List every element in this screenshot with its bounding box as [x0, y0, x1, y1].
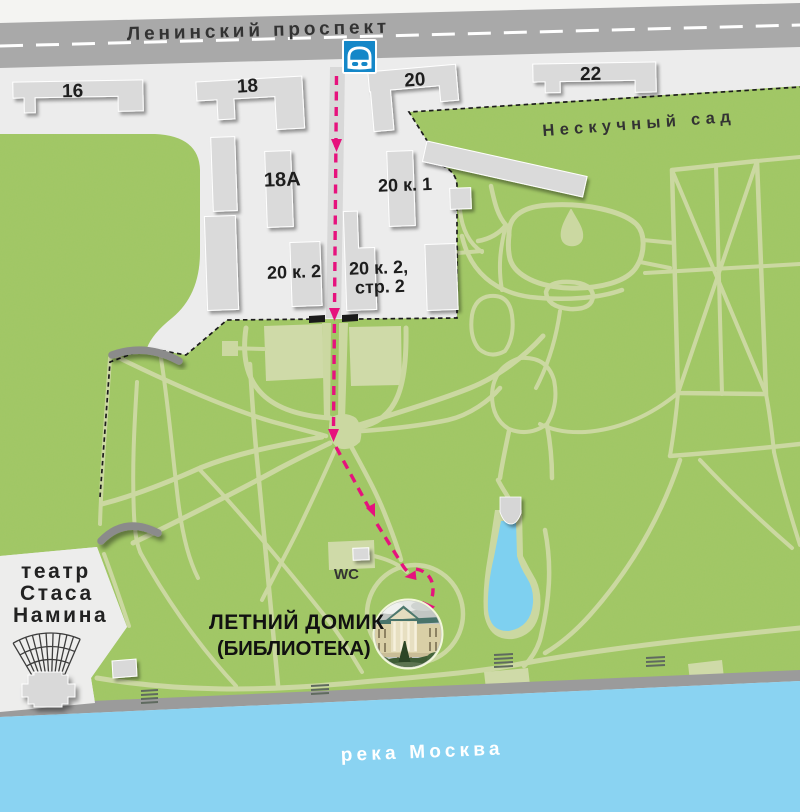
svg-text:Намина: Намина: [13, 604, 108, 627]
svg-text:стр. 2: стр. 2: [355, 276, 406, 298]
svg-text:театр: театр: [21, 560, 91, 583]
svg-text:18: 18: [236, 75, 258, 97]
svg-text:Стаса: Стаса: [20, 582, 94, 605]
svg-text:ЛЕТНИЙ ДОМИК: ЛЕТНИЙ ДОМИК: [209, 610, 384, 634]
svg-text:20: 20: [404, 69, 427, 91]
svg-text:18А: 18А: [264, 168, 301, 191]
svg-text:20 к. 1: 20 к. 1: [378, 174, 433, 196]
svg-text:WC: WC: [334, 566, 359, 583]
svg-text:16: 16: [62, 81, 84, 102]
svg-text:(БИБЛИОТЕКА): (БИБЛИОТЕКА): [217, 637, 371, 660]
svg-text:22: 22: [580, 64, 602, 85]
svg-text:20 к. 2: 20 к. 2: [267, 261, 322, 283]
